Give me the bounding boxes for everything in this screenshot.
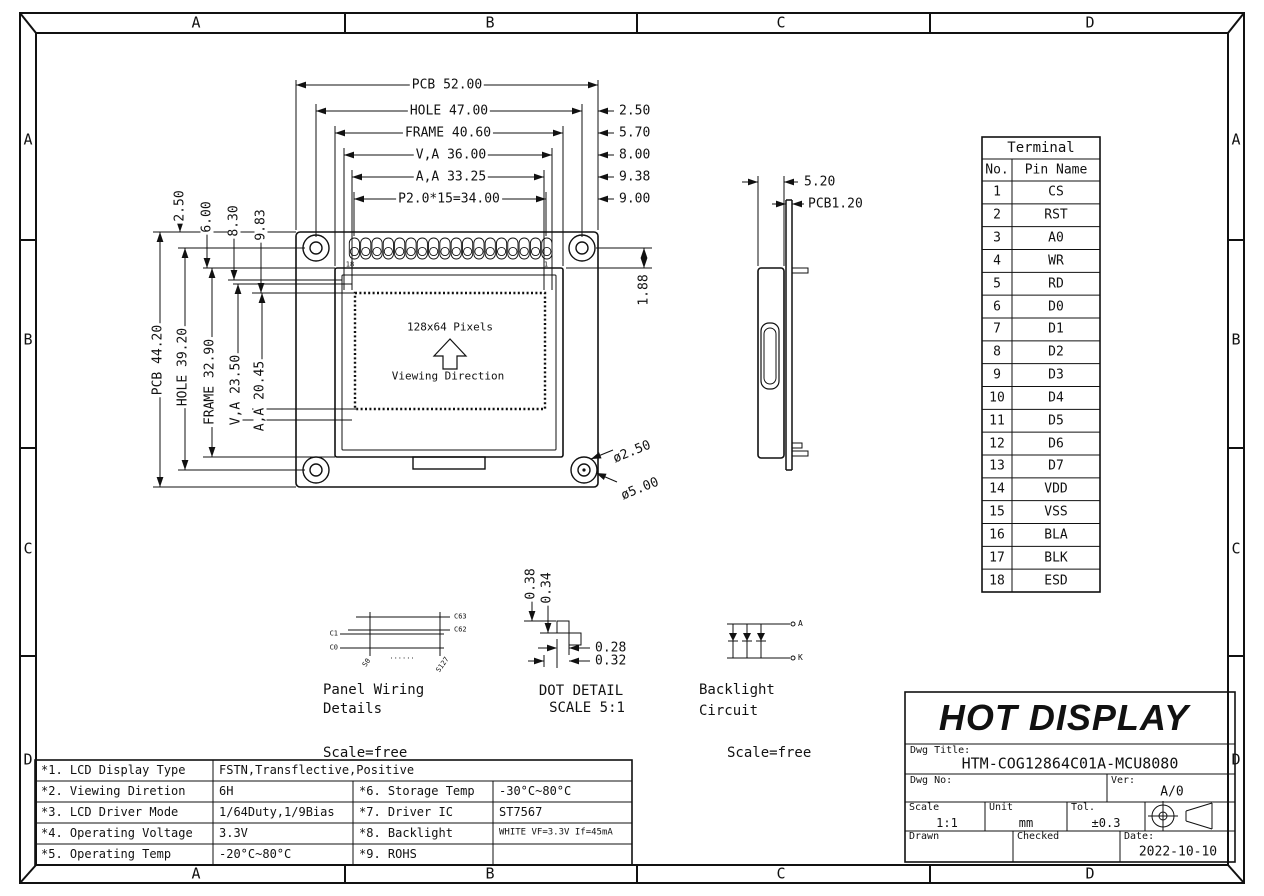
terminal-cell-no: 2 xyxy=(993,209,1001,222)
terminal-cell-name: D2 xyxy=(1048,346,1064,359)
dim-pcb-height: PCB 44.20 xyxy=(152,323,165,397)
dim-left-top-4: 9.83 xyxy=(255,207,268,242)
zone-letter-left-d: D xyxy=(23,753,32,768)
version-value: A/0 xyxy=(1160,786,1183,799)
spec-r3-value: 1/64Duty,1/9Bias xyxy=(219,806,335,818)
dim-aa-height: A,A 20.45 xyxy=(254,359,267,433)
tolerance-label: Tol. xyxy=(1071,803,1095,813)
dim-right-4: 9.38 xyxy=(617,171,652,184)
display-resolution-label: 128x64 Pixels xyxy=(407,322,493,333)
terminal-cell-name: D4 xyxy=(1048,391,1064,404)
pin-number-18: 18 xyxy=(346,262,354,269)
zone-letter-bottom-a: A xyxy=(191,867,200,882)
terminal-cell-no: 8 xyxy=(993,346,1001,359)
dot-detail-title: DOT DETAIL xyxy=(539,684,623,698)
zone-letter-right-a: A xyxy=(1231,133,1240,148)
dim-frame-height: FRAME 32.90 xyxy=(204,337,217,427)
terminal-cell-no: 17 xyxy=(989,551,1005,564)
spec-r3-value2: ST7567 xyxy=(499,806,542,818)
company-logo-text: HOT DISPLAY xyxy=(939,700,1189,736)
zone-letter-top-a: A xyxy=(191,16,200,31)
tolerance-value: ±0.3 xyxy=(1092,817,1121,829)
terminal-cell-no: 16 xyxy=(989,528,1005,541)
dim-pcb-width: PCB 52.00 xyxy=(410,79,484,92)
zone-letter-left-c: C xyxy=(23,542,32,557)
panel-wiring-label-c63: C63 xyxy=(454,614,467,621)
dim-side-pcb: PCB1.20 xyxy=(806,198,865,211)
backlight-title-1: Backlight xyxy=(699,683,775,697)
terminal-cell-name: CS xyxy=(1048,186,1064,199)
terminal-table-title: Terminal xyxy=(1007,141,1074,155)
version-label: Ver: xyxy=(1111,776,1135,786)
panel-wiring-title-2: Details xyxy=(323,702,382,716)
zone-letter-bottom-c: C xyxy=(776,867,785,882)
terminal-cell-name: RD xyxy=(1048,277,1064,290)
zone-letter-left-b: B xyxy=(23,333,32,348)
terminal-cell-name: D5 xyxy=(1048,414,1064,427)
dim-va-width: V,A 36.00 xyxy=(414,149,488,162)
terminal-col-no: No. xyxy=(985,164,1008,177)
dim-pin-pitch: P2.0*15=34.00 xyxy=(396,193,502,206)
zone-letter-top-b: B xyxy=(485,16,494,31)
backlight-cathode-label: K xyxy=(798,654,803,662)
drawn-label: Drawn xyxy=(909,832,939,842)
spec-r2-value: 6H xyxy=(219,785,233,797)
dwg-no-label: Dwg No: xyxy=(910,776,952,786)
terminal-cell-no: 4 xyxy=(993,254,1001,267)
terminal-cell-no: 12 xyxy=(989,437,1005,450)
unit-label: Unit xyxy=(989,803,1013,813)
panel-wiring-label-dots: ...... xyxy=(389,654,414,661)
terminal-cell-no: 7 xyxy=(993,323,1001,336)
spec-r3-label: *3. LCD Driver Mode xyxy=(41,806,178,818)
dim-left-top-3: 8.30 xyxy=(228,203,241,238)
spec-r2-label2: *6. Storage Temp xyxy=(359,785,475,797)
spec-r3-label2: *7. Driver IC xyxy=(359,806,453,818)
dot-detail-scale: SCALE 5:1 xyxy=(549,701,625,715)
backlight-anode-label: A xyxy=(798,620,803,628)
zone-letter-bottom-b: B xyxy=(485,867,494,882)
scale-value: 1:1 xyxy=(936,817,958,829)
dim-right-1: 2.50 xyxy=(617,105,652,118)
terminal-cell-name: BLA xyxy=(1044,528,1067,541)
backlight-scale: Scale=free xyxy=(727,746,811,760)
terminal-cell-name: VDD xyxy=(1044,483,1067,496)
dim-right-5: 9.00 xyxy=(617,193,652,206)
terminal-cell-no: 1 xyxy=(993,186,1001,199)
dim-right-2: 5.70 xyxy=(617,127,652,140)
terminal-col-name: Pin Name xyxy=(1025,164,1088,177)
dot-dim-h1: 0.38 xyxy=(525,566,538,601)
dim-right-3: 8.00 xyxy=(617,149,652,162)
terminal-cell-name: D3 xyxy=(1048,369,1064,382)
zone-letter-left-a: A xyxy=(23,133,32,148)
spec-r4-value2: WHITE VF=3.3V If=45mA xyxy=(499,829,613,838)
dwg-title-value: HTM-COG12864C01A-MCU8080 xyxy=(962,757,1179,772)
date-value: 2022-10-10 xyxy=(1139,846,1217,859)
spec-r2-label: *2. Viewing Diretion xyxy=(41,785,186,797)
terminal-cell-no: 10 xyxy=(989,391,1005,404)
engineering-drawing-sheet: A B C D A B C D A B C D A B C D PCB 52.0… xyxy=(0,0,1264,896)
zone-letter-right-b: B xyxy=(1231,333,1240,348)
terminal-cell-name: VSS xyxy=(1044,506,1067,519)
panel-wiring-title-1: Panel Wiring xyxy=(323,683,424,697)
dim-hole-height: HOLE 39.20 xyxy=(177,326,190,408)
spec-r1-label: *1. LCD Display Type xyxy=(41,764,186,776)
terminal-cell-name: D6 xyxy=(1048,437,1064,450)
unit-value: mm xyxy=(1019,817,1033,829)
spec-r4-value: 3.3V xyxy=(219,827,248,839)
date-label: Date: xyxy=(1124,832,1154,842)
spec-r2-value2: -30°C~80°C xyxy=(499,785,571,797)
spec-r1-value: FSTN,Transflective,Positive xyxy=(219,764,414,776)
spec-r5-label: *5. Operating Temp xyxy=(41,848,171,860)
checked-label: Checked xyxy=(1017,832,1059,842)
terminal-cell-name: D0 xyxy=(1048,300,1064,313)
terminal-cell-name: D1 xyxy=(1048,323,1064,336)
viewing-direction-label: Viewing Direction xyxy=(392,371,505,382)
pin-number-1: 1 xyxy=(544,262,548,269)
dim-frame-width: FRAME 40.60 xyxy=(403,127,493,140)
dim-side-thickness: 5.20 xyxy=(802,176,837,189)
terminal-cell-name: A0 xyxy=(1048,232,1064,245)
terminal-cell-no: 6 xyxy=(993,300,1001,313)
terminal-cell-no: 14 xyxy=(989,483,1005,496)
spec-r5-label2: *9. ROHS xyxy=(359,848,417,860)
zone-letter-top-c: C xyxy=(776,16,785,31)
spec-r4-label: *4. Operating Voltage xyxy=(41,827,193,839)
terminal-cell-name: RST xyxy=(1044,209,1067,222)
panel-wiring-scale: Scale=free xyxy=(323,746,407,760)
terminal-cell-name: BLK xyxy=(1044,551,1067,564)
dim-va-height: V,A 23.50 xyxy=(230,353,243,427)
zone-letter-top-d: D xyxy=(1085,16,1094,31)
zone-letter-right-d: D xyxy=(1231,753,1240,768)
dim-left-top-1: 2.50 xyxy=(174,188,187,223)
terminal-cell-no: 9 xyxy=(993,369,1001,382)
dim-left-top-2: 6.00 xyxy=(201,199,214,234)
dim-aa-width: A,A 33.25 xyxy=(414,171,488,184)
spec-r4-label2: *8. Backlight xyxy=(359,827,453,839)
terminal-cell-name: ESD xyxy=(1044,574,1067,587)
panel-wiring-label-c1: C1 xyxy=(330,631,338,638)
terminal-cell-no: 18 xyxy=(989,574,1005,587)
dot-dim-w2: 0.32 xyxy=(593,655,628,668)
zone-letter-bottom-d: D xyxy=(1085,867,1094,882)
panel-wiring-label-c0: C0 xyxy=(330,645,338,652)
terminal-cell-no: 3 xyxy=(993,232,1001,245)
terminal-cell-no: 15 xyxy=(989,506,1005,519)
dot-dim-h2: 0.34 xyxy=(541,570,554,605)
panel-wiring-label-c62: C62 xyxy=(454,627,467,634)
scale-label: Scale xyxy=(909,803,939,813)
dim-pad-offset: 1.88 xyxy=(638,272,651,307)
terminal-cell-no: 13 xyxy=(989,460,1005,473)
terminal-cell-no: 11 xyxy=(989,414,1005,427)
dim-hole-width: HOLE 47.00 xyxy=(408,105,490,118)
terminal-cell-name: WR xyxy=(1048,254,1064,267)
spec-r5-value: -20°C~80°C xyxy=(219,848,291,860)
terminal-cell-name: D7 xyxy=(1048,460,1064,473)
zone-letter-right-c: C xyxy=(1231,542,1240,557)
backlight-title-2: Circuit xyxy=(699,704,758,718)
terminal-cell-no: 5 xyxy=(993,277,1001,290)
